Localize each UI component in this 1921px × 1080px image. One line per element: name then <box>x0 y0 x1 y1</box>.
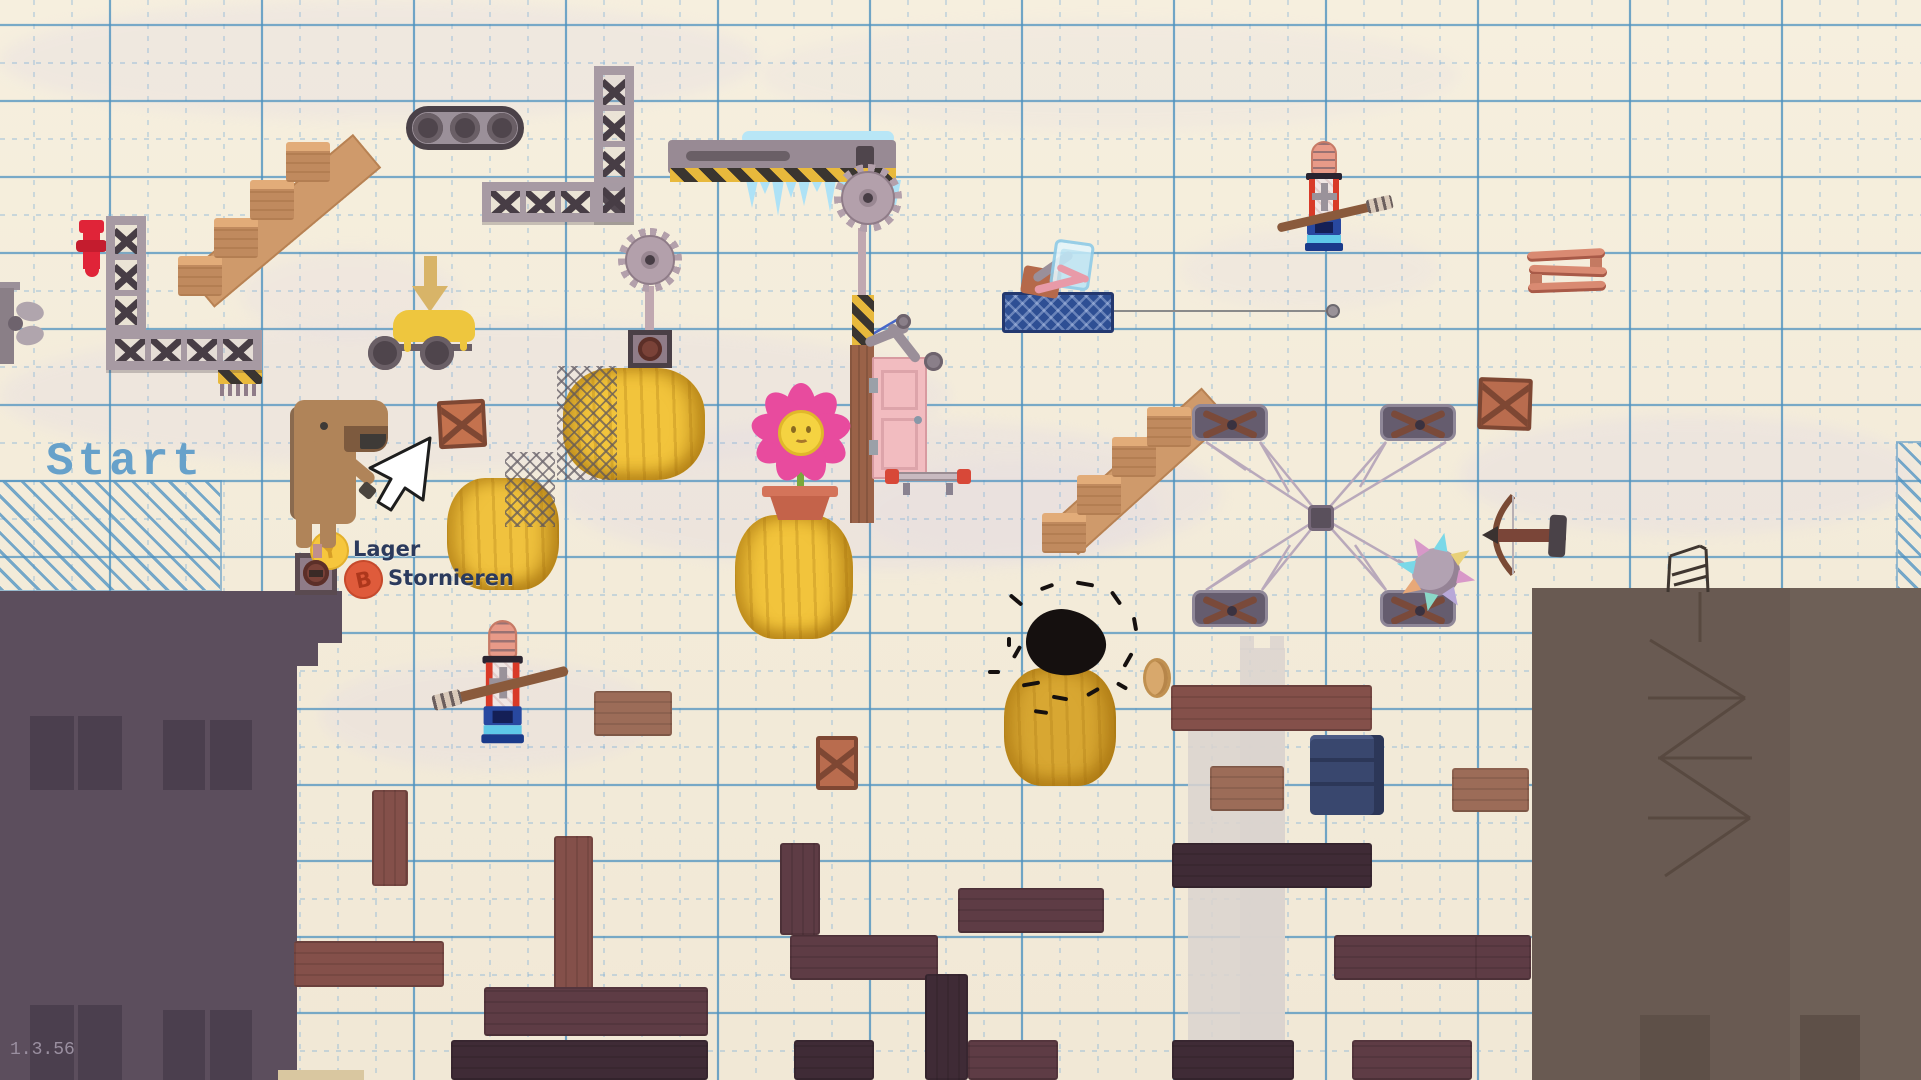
version-number: 1.3.56 <box>10 1040 75 1060</box>
horse-character[interactable] <box>286 392 436 562</box>
black-hole-dash <box>988 670 1000 674</box>
black-hole-dash <box>1122 652 1133 668</box>
saw-blade <box>834 164 902 232</box>
black-hole-dash <box>1110 590 1122 605</box>
horse-leg <box>296 518 312 548</box>
horse-eye <box>320 422 328 430</box>
horse-mouth <box>360 434 386 449</box>
black-hole-dash <box>1116 681 1128 690</box>
winch-slot <box>309 570 323 577</box>
crossbow-arrowhead <box>1482 526 1498 544</box>
black-hole-dash <box>1132 617 1138 631</box>
horse-leg <box>320 518 336 548</box>
black-hole-dash <box>1076 580 1094 587</box>
black-hole-dash <box>1012 645 1022 659</box>
black-hole-dash <box>1009 593 1024 606</box>
black-hole-dash <box>1022 680 1040 687</box>
black-hole-dash <box>1034 709 1048 715</box>
game-viewport: Start <box>0 0 1921 1080</box>
black-hole-dash <box>1007 637 1011 647</box>
horse-hand-grip <box>358 481 378 501</box>
black-hole-dash <box>1052 695 1068 702</box>
barrel-band <box>1310 782 1384 786</box>
black-hole-dash <box>1040 583 1055 592</box>
winch-pole <box>313 544 322 558</box>
barrel-band <box>1310 758 1384 762</box>
crossbow-stock <box>1548 515 1567 558</box>
black-hole-dash <box>1086 687 1100 697</box>
